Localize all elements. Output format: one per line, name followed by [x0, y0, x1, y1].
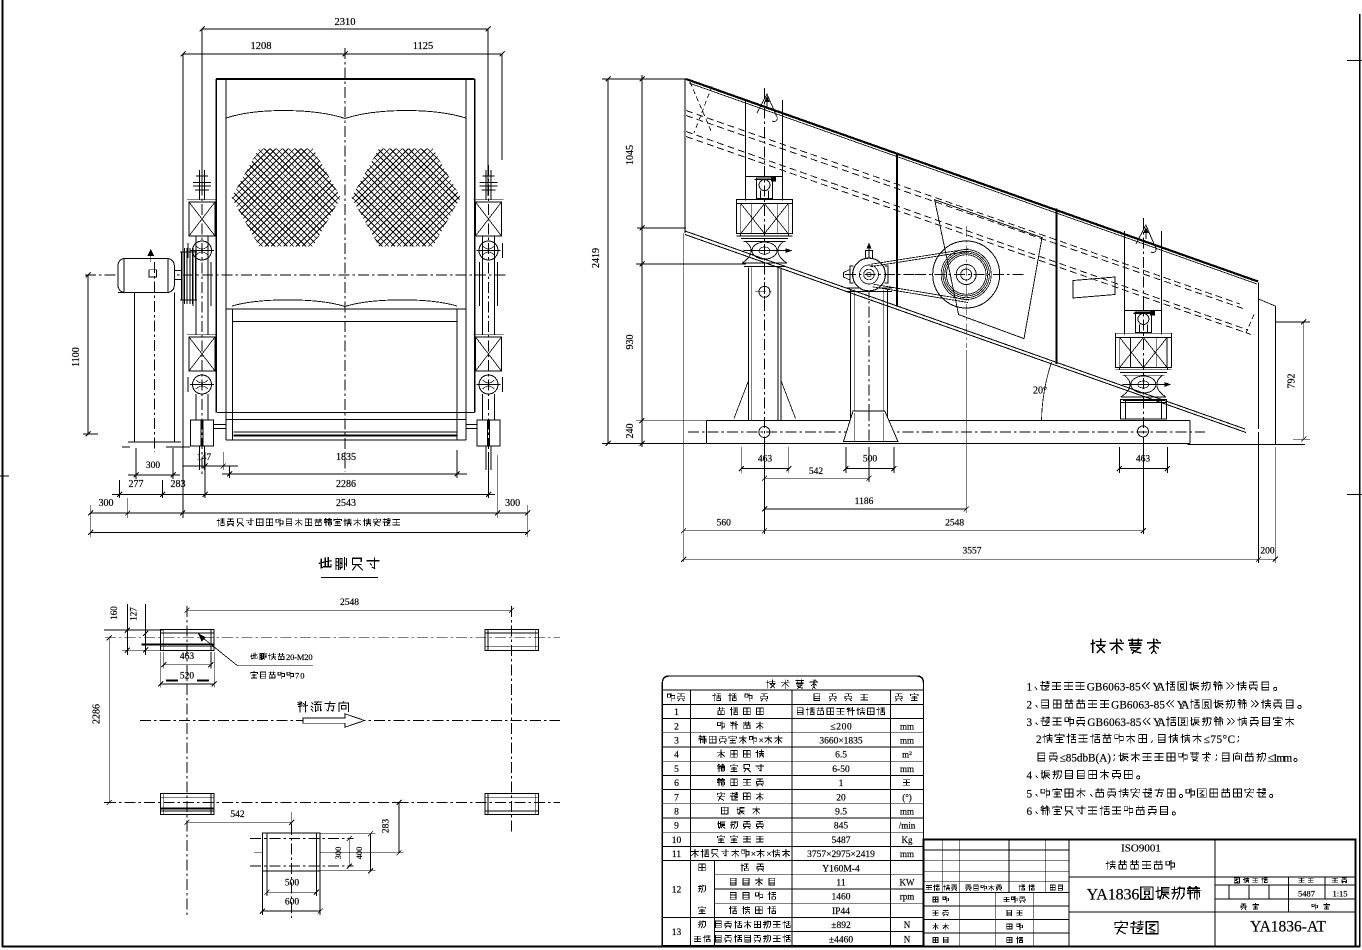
svg-text:845: 845: [834, 822, 849, 832]
svg-text:2286: 2286: [336, 479, 356, 490]
svg-text:GB6063-85: GB6063-85: [1087, 717, 1141, 729]
svg-text:160: 160: [109, 606, 119, 620]
svg-text:2: 2: [1027, 700, 1033, 712]
svg-text:463: 463: [758, 455, 773, 465]
svg-text:463: 463: [180, 652, 195, 662]
svg-text:4: 4: [674, 751, 679, 761]
svg-text:3757×2975×2419: 3757×2975×2419: [807, 850, 875, 860]
svg-text:2548: 2548: [340, 598, 359, 608]
svg-text:mm: mm: [900, 849, 914, 859]
svg-text:Kg: Kg: [902, 835, 913, 845]
svg-text:Y160M-4: Y160M-4: [822, 864, 860, 874]
svg-text:×: ×: [766, 850, 771, 860]
svg-text:10: 10: [672, 836, 682, 846]
svg-text:GB6063-85: GB6063-85: [1111, 700, 1165, 712]
svg-text:N: N: [904, 934, 911, 944]
svg-text:283: 283: [382, 819, 392, 834]
svg-text:5487: 5487: [832, 836, 851, 846]
svg-text:6.5: 6.5: [835, 751, 847, 761]
svg-text:5: 5: [1027, 789, 1033, 801]
svg-text:70: 70: [295, 671, 305, 681]
svg-text:2548: 2548: [945, 519, 964, 529]
svg-text:2310: 2310: [335, 17, 356, 28]
svg-text:20: 20: [836, 793, 846, 803]
svg-text:GB6063-85: GB6063-85: [1087, 682, 1141, 694]
svg-text:200: 200: [1260, 547, 1275, 557]
svg-text:300: 300: [99, 498, 114, 509]
svg-text:1208: 1208: [251, 41, 272, 52]
svg-text:mm: mm: [900, 721, 914, 731]
svg-text:1100: 1100: [71, 347, 82, 367]
svg-text:2: 2: [1036, 734, 1042, 746]
svg-text:127: 127: [129, 607, 139, 621]
svg-text:YA: YA: [1153, 682, 1166, 694]
svg-text:2: 2: [674, 722, 679, 732]
svg-text:3557: 3557: [963, 547, 982, 557]
svg-text:1125: 1125: [413, 41, 434, 52]
svg-text:(°): (°): [902, 792, 912, 802]
svg-text:147: 147: [197, 453, 212, 463]
svg-text:8: 8: [674, 808, 679, 818]
svg-text:3: 3: [1027, 717, 1033, 729]
svg-text:930: 930: [625, 335, 636, 350]
svg-text:13: 13: [672, 928, 682, 938]
svg-text:500: 500: [863, 455, 878, 465]
svg-text:mm: mm: [900, 764, 914, 774]
svg-text:6: 6: [1027, 806, 1033, 818]
svg-text:300: 300: [333, 847, 343, 860]
svg-text:277: 277: [129, 479, 144, 490]
svg-text:20-M20: 20-M20: [286, 652, 313, 662]
svg-text:N: N: [904, 920, 911, 930]
svg-text:6: 6: [674, 779, 679, 789]
svg-text:1:15: 1:15: [1332, 889, 1347, 899]
svg-text:×: ×: [759, 737, 764, 747]
svg-text:9.5: 9.5: [835, 808, 847, 818]
svg-text:1: 1: [674, 708, 679, 718]
svg-text:ISO9001: ISO9001: [1121, 843, 1161, 855]
svg-text:560: 560: [717, 519, 732, 529]
svg-text:1186: 1186: [855, 497, 874, 507]
svg-text:9: 9: [674, 822, 679, 832]
svg-text:542: 542: [230, 810, 245, 820]
svg-text:2286: 2286: [92, 704, 103, 724]
svg-text:2543: 2543: [336, 498, 356, 509]
svg-text:1460: 1460: [832, 893, 851, 903]
svg-text:1835: 1835: [336, 452, 356, 463]
svg-text:≤200: ≤200: [830, 722, 852, 732]
svg-text:YA1836: YA1836: [1087, 887, 1140, 904]
svg-text:m²: m²: [902, 750, 912, 760]
svg-text:4: 4: [1027, 770, 1033, 782]
svg-text:300: 300: [505, 498, 520, 509]
svg-text:1: 1: [1027, 682, 1033, 694]
svg-text:mm: mm: [900, 807, 914, 817]
svg-text:YA1836-AT: YA1836-AT: [1250, 919, 1326, 936]
svg-text:240: 240: [625, 424, 636, 439]
svg-text:542: 542: [809, 467, 824, 477]
svg-text:283: 283: [171, 479, 186, 490]
svg-text:600: 600: [285, 898, 300, 908]
svg-text:KW: KW: [900, 878, 915, 888]
svg-text:11: 11: [836, 879, 845, 889]
svg-text:≤75°C: ≤75°C: [1204, 734, 1235, 746]
svg-text:3: 3: [674, 737, 679, 747]
svg-text:12: 12: [672, 886, 682, 896]
svg-text:400: 400: [354, 847, 364, 860]
svg-text:IP44: IP44: [832, 907, 850, 917]
svg-text:×: ×: [751, 850, 756, 860]
svg-text:YA: YA: [1177, 700, 1190, 712]
svg-text:mm: mm: [900, 736, 914, 746]
svg-text:1: 1: [839, 779, 844, 789]
svg-text:6-50: 6-50: [832, 765, 850, 775]
svg-text:rpm: rpm: [900, 892, 915, 902]
svg-text:3660×1835: 3660×1835: [819, 737, 863, 747]
svg-text:792: 792: [1287, 374, 1298, 389]
svg-text:/min: /min: [899, 821, 916, 831]
svg-text:≤85dbB(A): ≤85dbB(A): [1060, 753, 1112, 765]
svg-text:5487: 5487: [1298, 889, 1315, 899]
svg-text:2419: 2419: [591, 248, 602, 268]
svg-text:1045: 1045: [625, 145, 636, 165]
svg-text:500: 500: [285, 879, 300, 889]
svg-text:11: 11: [672, 850, 681, 860]
svg-text:±4460: ±4460: [829, 935, 853, 945]
svg-text:7: 7: [674, 793, 679, 803]
svg-text:YA: YA: [1153, 717, 1166, 729]
svg-text:300: 300: [146, 461, 161, 471]
svg-text:±892: ±892: [831, 921, 851, 931]
svg-text:520: 520: [180, 672, 195, 682]
svg-text:5: 5: [674, 765, 679, 775]
svg-text:≤1mm: ≤1mm: [1268, 753, 1293, 765]
